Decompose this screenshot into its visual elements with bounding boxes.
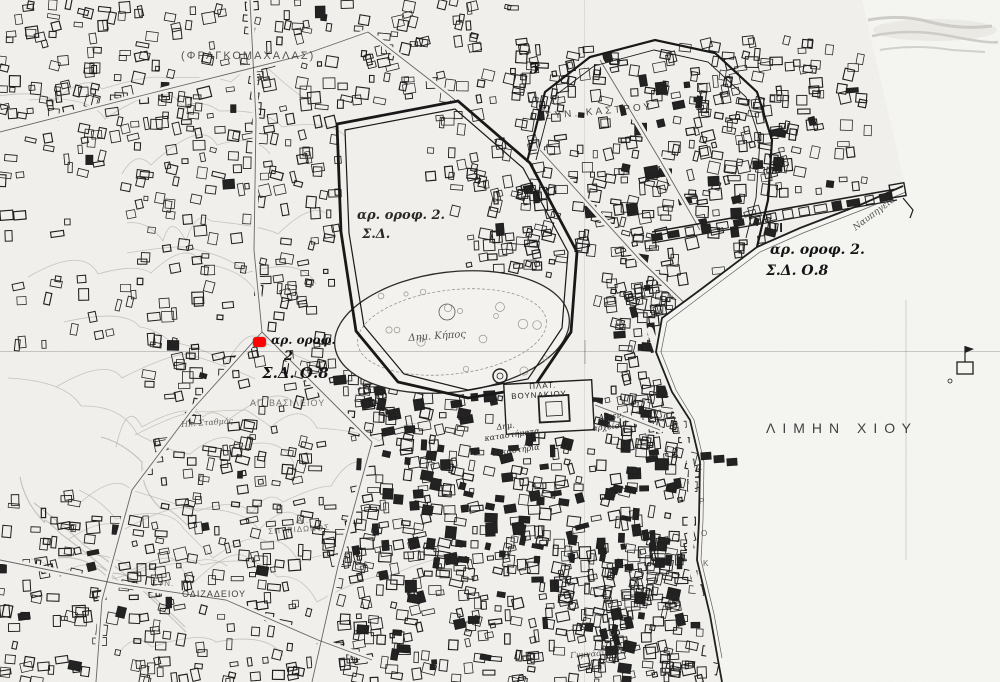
paper-grain-overlay (0, 0, 1000, 682)
map-canvas: (ΦΡΑΓΚΟΜΑΧΑΛΑΣ)ΣΥΝ. ΚΑΣΤΡΟΥ5αρ. οροφ. 2.… (0, 0, 1000, 682)
map-svg (0, 0, 1000, 682)
red-marker[interactable] (253, 337, 266, 347)
